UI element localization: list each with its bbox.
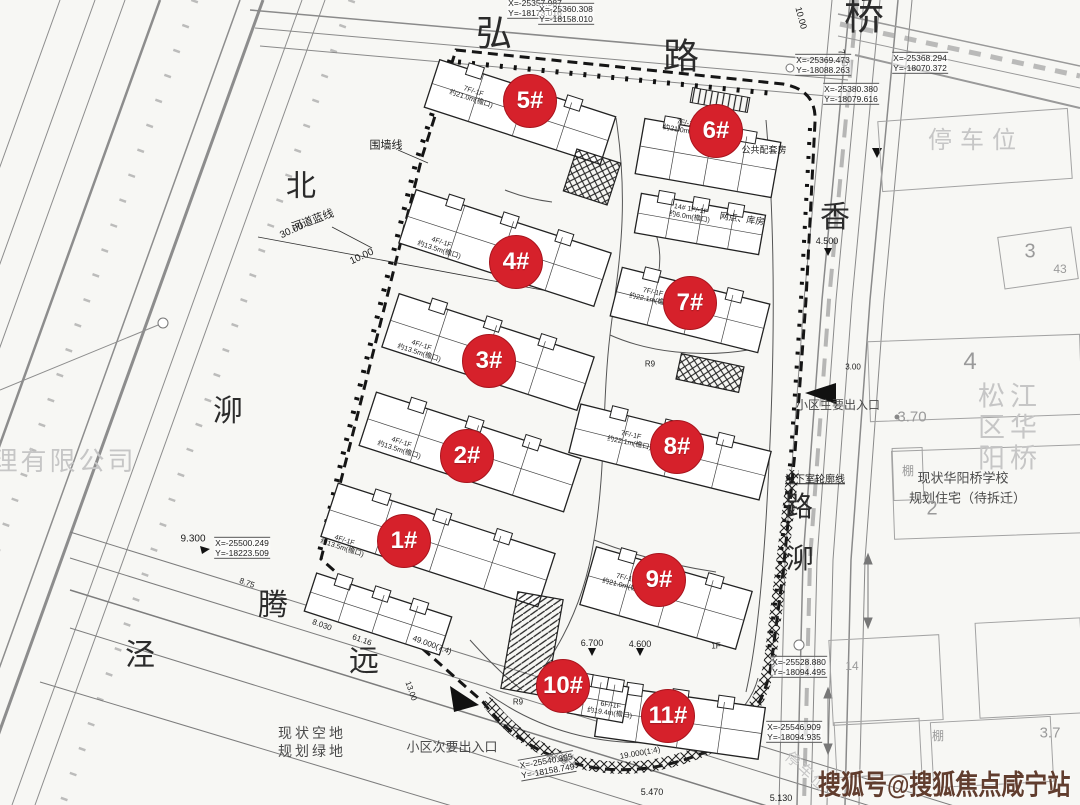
top-road [250,10,850,98]
building-footprint [635,113,782,198]
building-footprint [359,386,583,511]
site-plan-image: 弘路桥香路泖北泖泾腾远停车位停车位理有限公司松江区华阳桥现状华阳桥学校规划住宅（… [0,0,1080,805]
building-footprint [634,187,766,254]
river-band [0,0,352,805]
building-footprint [424,54,617,164]
existing-structure [998,227,1079,289]
existing-structure [975,618,1080,718]
building-footprint [569,398,773,500]
building-footprint [580,541,754,649]
building-footprint [382,288,596,410]
building-footprint [676,354,744,393]
building-footprint [610,262,771,353]
existing-structure [892,447,924,500]
building-footprint [399,184,613,306]
building-footprint [304,567,453,655]
building-footprint [563,149,620,205]
existing-structure [868,334,1080,421]
watermark: 搜狐号@搜狐焦点咸宁站 [818,762,1070,802]
existing-structure [829,635,943,726]
building-footprint [690,88,750,113]
building-footprint [501,592,563,696]
site-plan-linework [0,0,1080,805]
building-footprint [567,672,629,723]
existing-structure [892,445,1080,540]
existing-structure [878,108,1072,191]
